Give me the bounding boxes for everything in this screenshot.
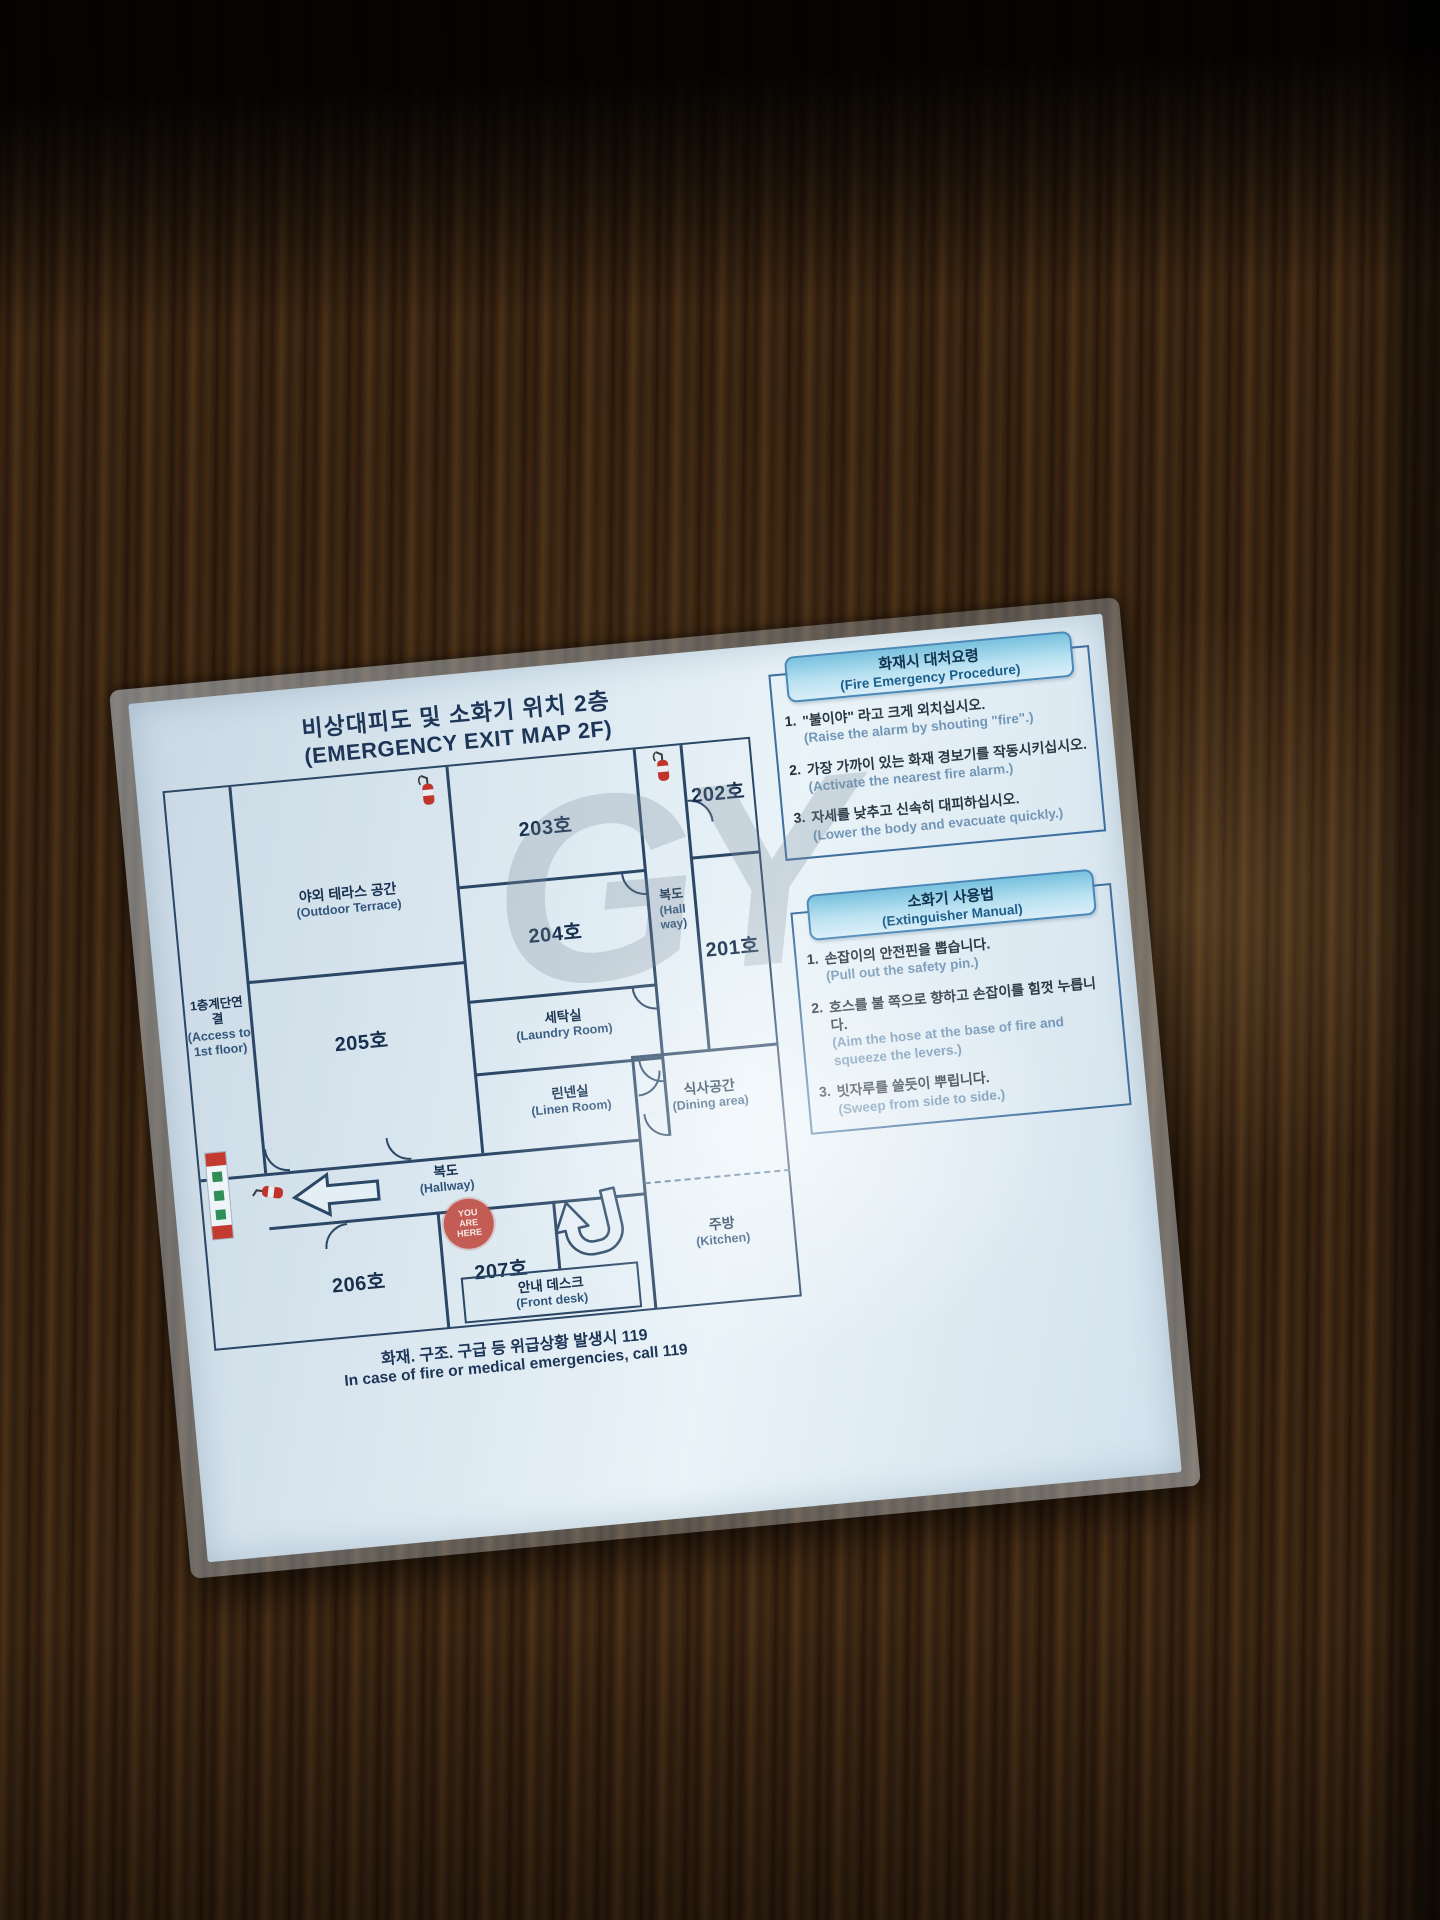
linen-room-label: 린넨실 (Linen Room) [479, 1076, 663, 1124]
door-arc-206 [323, 1223, 349, 1249]
wall [457, 869, 646, 889]
item-number: 2. [788, 761, 803, 798]
u-turn-arrow-icon [541, 1178, 648, 1275]
outdoor-terrace-label: 야외 테라스 공간 (Outdoor Terrace) [244, 875, 452, 926]
room-202-label: 202호 [680, 779, 756, 810]
extinguisher-manual-box: 소화기 사용법 (Extinguisher Manual) 1. 손잡이의 안전… [790, 883, 1131, 1135]
room-206-label: 206호 [276, 1265, 442, 1304]
sign-content: 비상대피도 및 소화기 위치 2층 (EMERGENCY EXIT MAP 2F… [156, 635, 1151, 1403]
extinguisher-location-sign [204, 1151, 234, 1241]
wall [631, 1042, 779, 1058]
wall [246, 961, 465, 984]
sign-green-glyphs [206, 1165, 231, 1227]
fire-extinguisher-icon [416, 772, 439, 808]
wall [690, 850, 760, 859]
item-body: 손잡이의 안전핀을 뽑습니다. (Pull out the safety pin… [824, 935, 993, 986]
hall-way-vertical-label: 복도 (Hall way) [646, 884, 700, 934]
laundry-room-label: 세탁실 (Laundry Room) [472, 1001, 656, 1049]
door-arc-203 [621, 871, 647, 897]
evacuation-arrow-left-icon [288, 1167, 384, 1221]
access-1st-floor-label: 1층계단연결 (Access to 1st floor) [184, 994, 253, 1061]
sign-paper: 비상대피도 및 소화기 위치 2층 (EMERGENCY EXIT MAP 2F… [128, 614, 1181, 1563]
wall [467, 983, 656, 1003]
item-number: 2. [811, 999, 829, 1071]
item-body: 호스를 불 쪽으로 향하고 손잡이를 힘껏 누릅니다. (Aim the hos… [828, 972, 1116, 1069]
floor-plan: 1층계단연결 (Access to 1st floor) 야외 테라스 공간 (… [162, 737, 801, 1351]
room-205-label: 205호 [258, 1021, 465, 1064]
hallway-label: 복도 (Hallway) [385, 1158, 507, 1201]
laminated-sign-sleeve: 비상대피도 및 소화기 위치 2층 (EMERGENCY EXIT MAP 2F… [109, 597, 1201, 1579]
kitchen-label: 주방 (Kitchen) [648, 1209, 796, 1255]
fire-extinguisher-icon [651, 748, 674, 784]
you-are-here-line: HERE [457, 1228, 483, 1240]
plan-column: 비상대피도 및 소화기 위치 2층 (EMERGENCY EXIT MAP 2F… [156, 666, 815, 1402]
photo-scene: 비상대피도 및 소화기 위치 2층 (EMERGENCY EXIT MAP 2F… [0, 0, 1440, 1920]
item-body: "불이야" 라고 크게 외치십시오. (Raise the alarm by s… [802, 691, 1035, 748]
you-are-here-badge: YOU ARE HERE [442, 1197, 496, 1251]
procedures-column: 화재시 대처요령 (Fire Emergency Procedure) 1. "… [767, 635, 1151, 1346]
item-number: 1. [806, 951, 821, 988]
door-arc-205 [385, 1136, 411, 1162]
wall-bottom-shade [0, 1620, 1440, 1920]
fire-procedure-box: 화재시 대처요령 (Fire Emergency Procedure) 1. "… [768, 645, 1106, 861]
wall-top-shadow [0, 0, 1440, 341]
dashed-partition [645, 1169, 791, 1184]
sign-red-band [212, 1225, 233, 1240]
room-201-label: 201호 [694, 933, 770, 964]
room-203-label: 203호 [454, 808, 637, 849]
item-number: 3. [793, 809, 808, 846]
item-number: 1. [784, 712, 799, 749]
room-204-label: 204호 [464, 914, 647, 955]
door-arc-stairs [264, 1147, 290, 1173]
item-body: 빗자루를 쓸듯이 뿌립니다. (Sweep from side to side.… [836, 1067, 1006, 1118]
item-body: 자세를 낮추고 신속히 대피하십시오. (Lower the body and … [811, 786, 1064, 845]
fire-extinguisher-icon-hallway [250, 1180, 286, 1204]
item-number: 3. [818, 1083, 833, 1120]
extinguisher-manual-item: 2. 호스를 불 쪽으로 향하고 손잡이를 힘껏 누릅니다. (Aim the … [811, 972, 1116, 1071]
